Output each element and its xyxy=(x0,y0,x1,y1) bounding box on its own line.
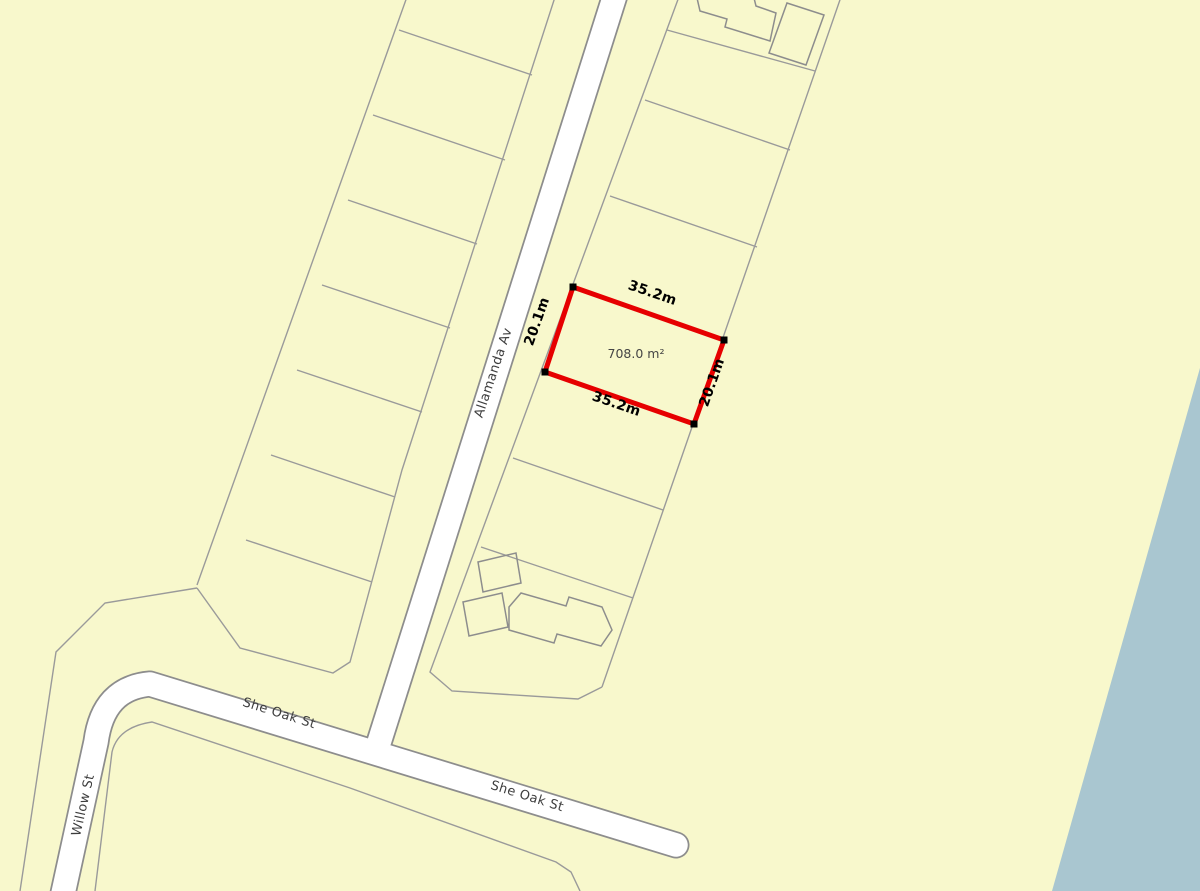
parcel-area-label: 708.0 m² xyxy=(608,346,665,361)
map-viewport[interactable]: Allamanda Av She Oak St She Oak St Willo… xyxy=(0,0,1200,891)
land-background xyxy=(0,0,1200,891)
cadastral-map-canvas[interactable]: Allamanda Av She Oak St She Oak St Willo… xyxy=(0,0,1200,891)
